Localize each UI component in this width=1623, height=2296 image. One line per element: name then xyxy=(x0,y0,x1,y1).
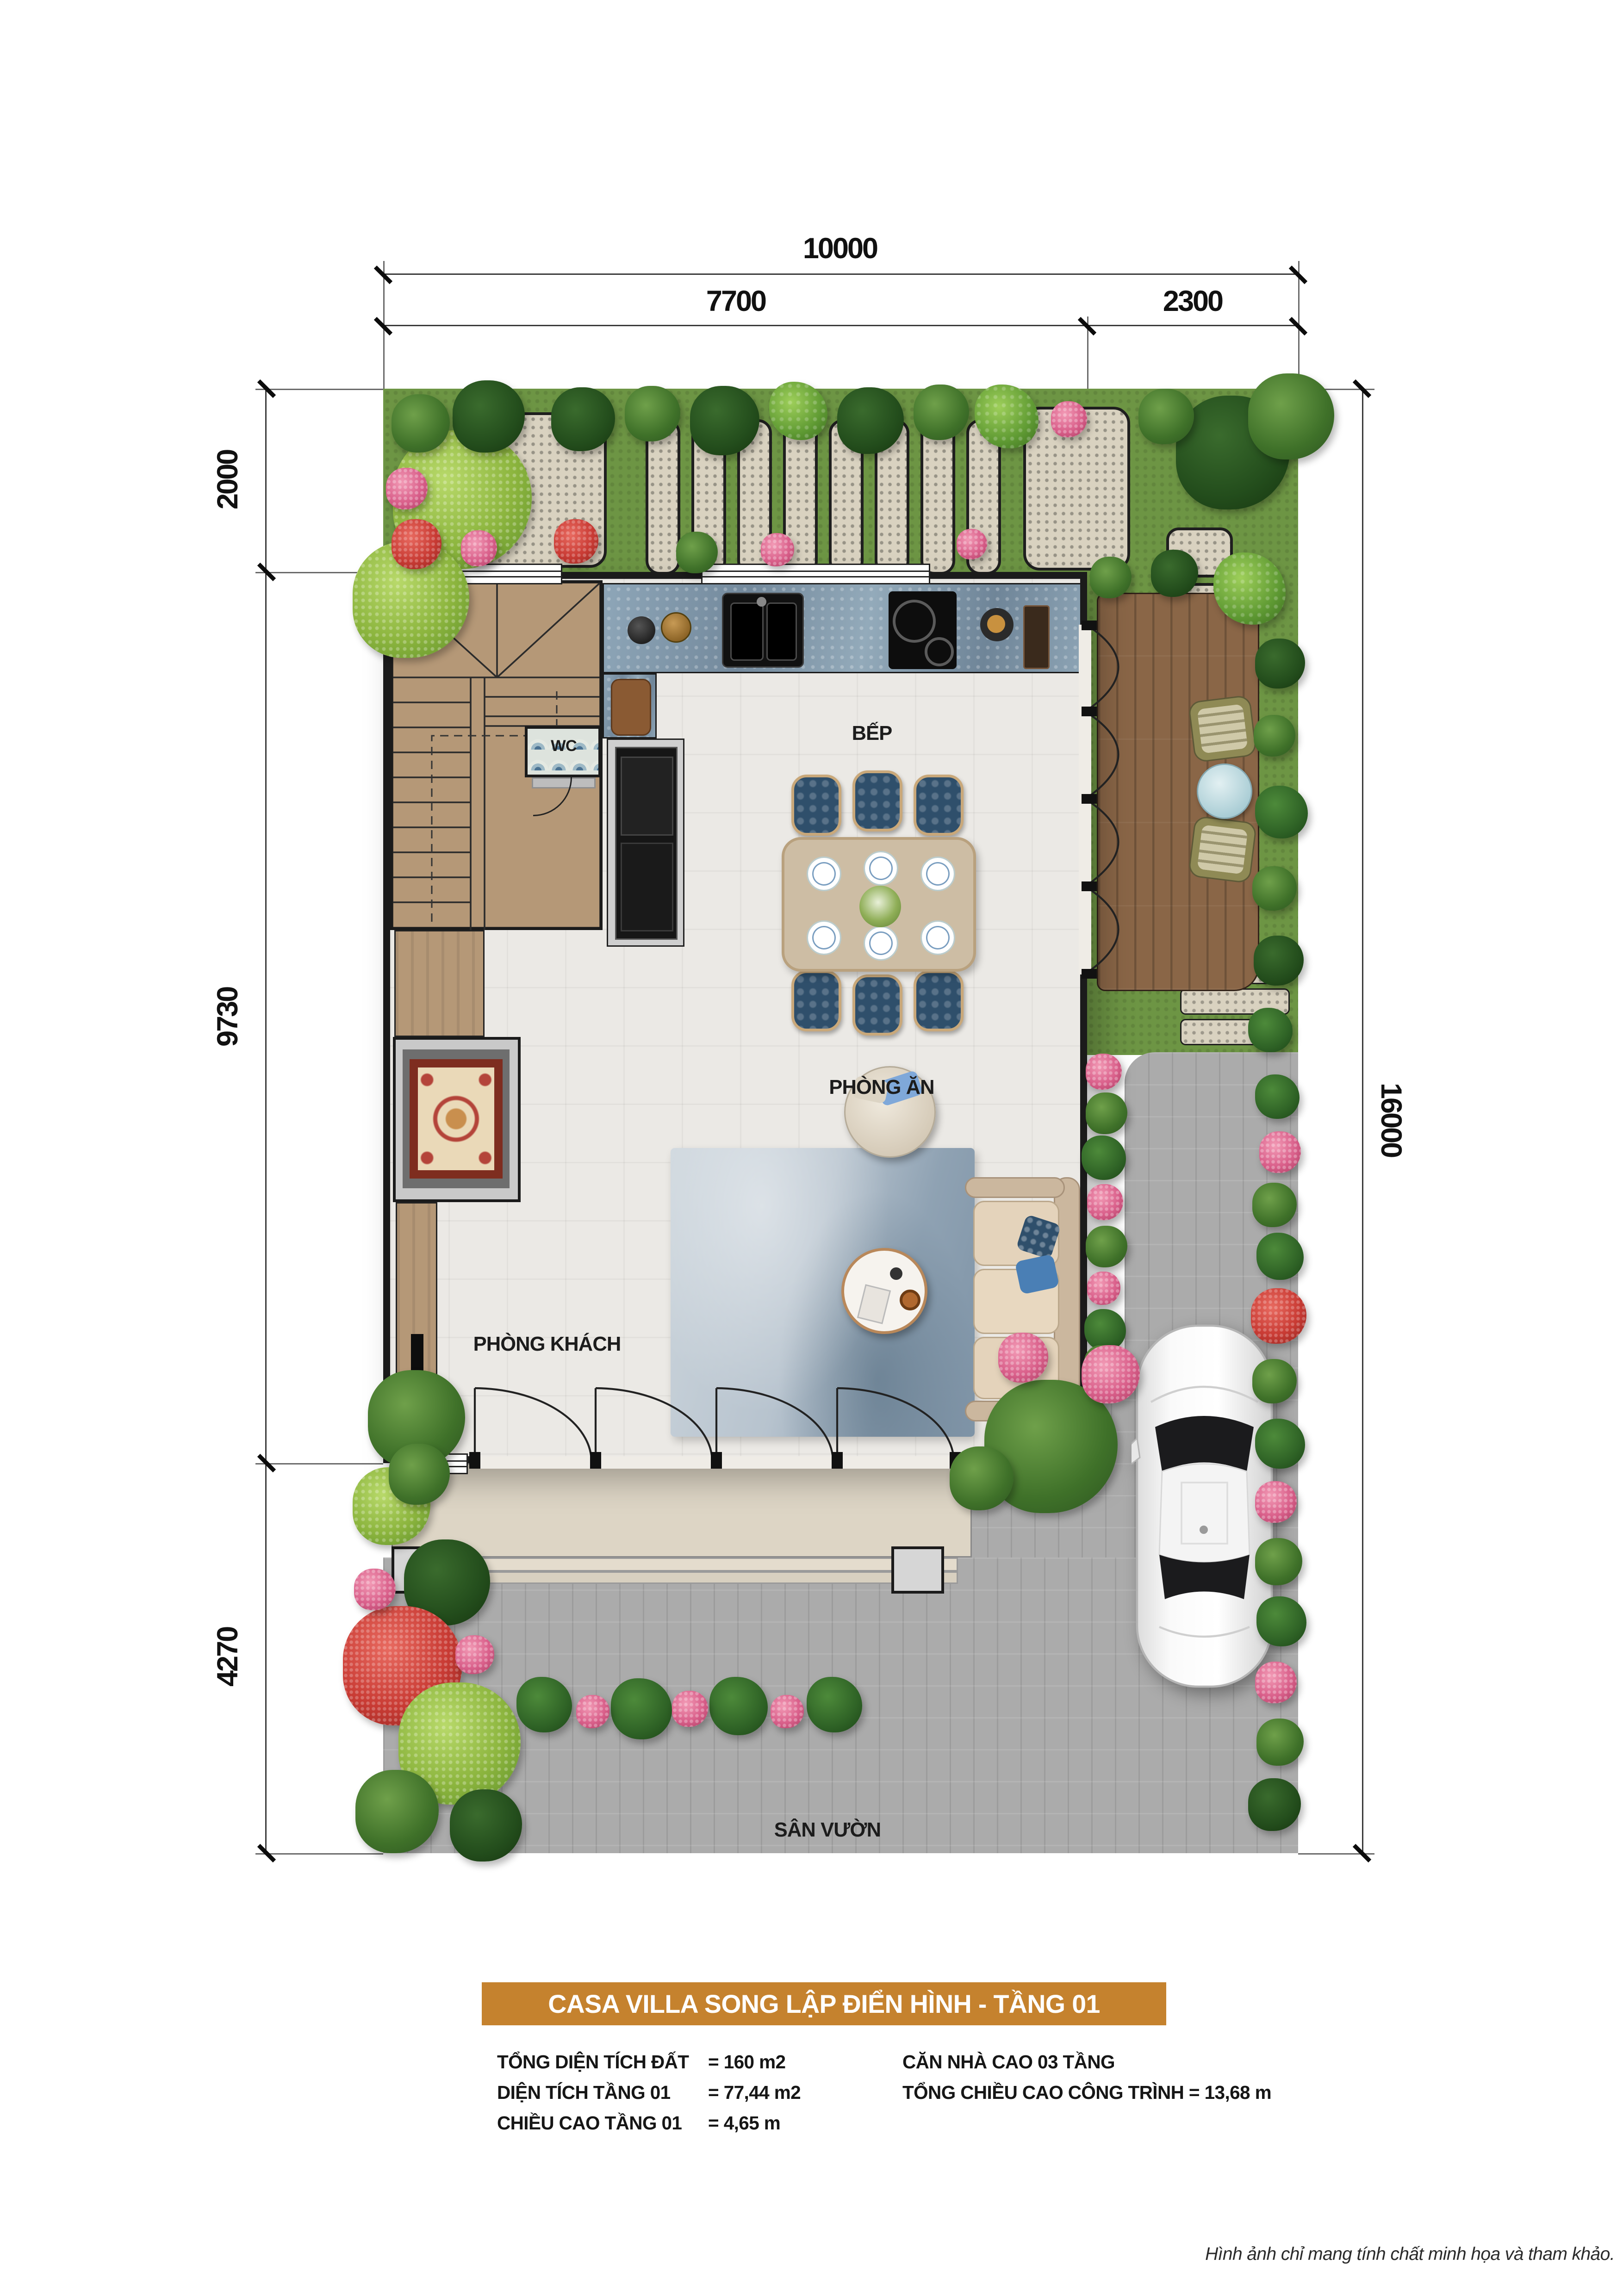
living-label: PHÒNG KHÁCH xyxy=(436,1334,658,1356)
ornate-rug xyxy=(410,1059,503,1179)
dim-top-right: 2300 xyxy=(1109,286,1276,319)
plant-icon xyxy=(1256,1233,1304,1280)
serving-plate xyxy=(980,608,1014,641)
plant-icon xyxy=(807,1677,862,1732)
spec-row: TỔNG DIỆN TÍCH ĐẤT= 160 m2 xyxy=(497,2052,785,2073)
porch-pier xyxy=(891,1546,944,1594)
kitchen-label: BẾP xyxy=(816,723,927,745)
table-flowers xyxy=(859,886,901,927)
cooktop xyxy=(889,591,957,669)
coffee-table xyxy=(841,1248,927,1334)
plant-icon xyxy=(1087,1272,1120,1305)
deck-folding-doors xyxy=(1082,621,1154,981)
dining-chair xyxy=(791,775,841,836)
wc-label: WC xyxy=(529,738,598,755)
spec-row: CĂN NHÀ CAO 03 TẦNG xyxy=(902,2052,1115,2073)
dim-line-top-total xyxy=(383,273,1298,275)
plant-icon xyxy=(611,1678,672,1739)
dining-chair xyxy=(791,970,841,1031)
plant-icon xyxy=(1255,1074,1300,1119)
wood-cabinet xyxy=(394,930,485,1037)
dining-chair xyxy=(852,974,902,1036)
dining-label: PHÒNG ĂN xyxy=(784,1077,979,1099)
plant-icon xyxy=(1086,1092,1127,1134)
disclaimer-note: Hình ảnh chỉ mang tính chất minh họa và … xyxy=(1205,2243,1615,2264)
dim-left-bottom: 4270 xyxy=(211,1602,247,1713)
title-banner: CASA VILLA SONG LẬP ĐIỂN HÌNH - TẦNG 01 xyxy=(482,1982,1166,2025)
dining-table xyxy=(782,837,976,972)
cutting-board xyxy=(611,679,651,736)
bowl xyxy=(628,616,655,644)
dim-top-total: 10000 xyxy=(750,233,930,267)
patio-chair xyxy=(1188,695,1257,763)
dim-line-top-split xyxy=(383,325,1298,327)
dining-chair xyxy=(914,970,964,1031)
fridge-niche xyxy=(607,738,684,947)
plant-icon xyxy=(1082,1136,1126,1180)
dim-top-left: 7700 xyxy=(653,286,819,319)
stepping-stone xyxy=(920,419,955,575)
spec-row: TỔNG CHIỀU CAO CÔNG TRÌNH = 13,68 m xyxy=(902,2082,1271,2103)
dining-chair xyxy=(852,770,902,832)
dim-line-right xyxy=(1362,389,1364,1853)
plant-icon xyxy=(1255,786,1308,838)
stepping-stone xyxy=(646,419,680,575)
alcove xyxy=(393,1037,521,1202)
bowl xyxy=(661,612,691,643)
plant-icon xyxy=(1248,1008,1293,1052)
plant-icon xyxy=(1086,1226,1127,1267)
yard-label: SÂN VƯỜN xyxy=(716,1820,939,1842)
plant-icon xyxy=(1084,1309,1126,1351)
plant-icon xyxy=(1087,1184,1123,1220)
plant-icon xyxy=(1251,1288,1306,1344)
dim-line-left xyxy=(265,389,267,1853)
dim-left-middle: 9730 xyxy=(211,962,247,1073)
entrance-folding-doors xyxy=(466,1380,964,1469)
floor-plan-page: 10000 7700 2300 2000 9730 4270 16000 xyxy=(0,0,1623,2296)
plant-icon xyxy=(957,529,987,559)
patio-chair xyxy=(1188,815,1257,883)
dim-left-top: 2000 xyxy=(211,425,247,536)
plant-icon xyxy=(1086,1054,1122,1090)
plant-icon xyxy=(709,1677,768,1735)
spec-row: CHIỀU CAO TẦNG 01= 4,65 m xyxy=(497,2113,780,2134)
patio-table xyxy=(1197,763,1252,819)
dim-right-total: 16000 xyxy=(1372,1065,1408,1176)
dining-chair xyxy=(914,775,964,836)
plant-icon xyxy=(1248,373,1334,459)
porch xyxy=(392,1463,972,1558)
tray xyxy=(1023,605,1050,669)
plant-icon xyxy=(1255,1419,1305,1469)
plant-icon xyxy=(1256,1596,1306,1646)
plant-icon xyxy=(516,1677,572,1732)
kitchen-sink xyxy=(722,593,804,668)
spec-row: DIỆN TÍCH TẦNG 01= 77,44 m2 xyxy=(497,2082,801,2103)
window xyxy=(701,564,930,584)
